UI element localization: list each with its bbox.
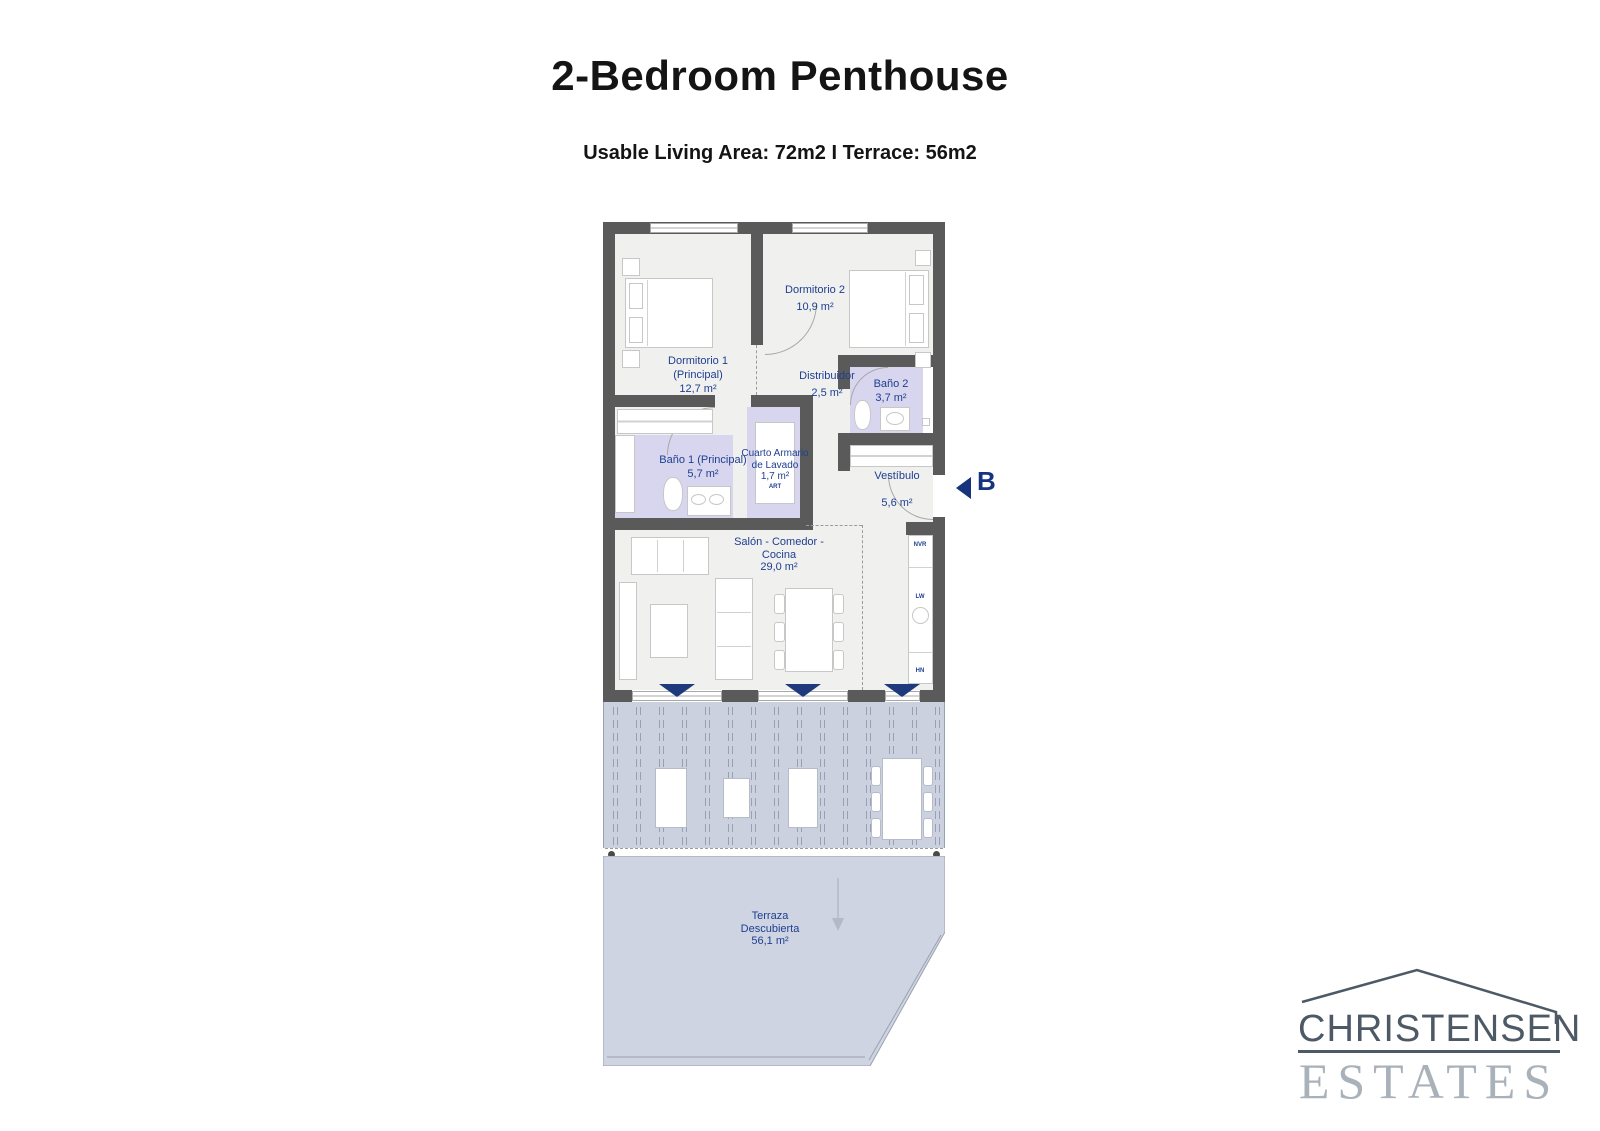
room-name: Salón - Comedor - [734, 536, 824, 549]
sink [709, 494, 724, 505]
chair [871, 792, 881, 812]
room-area: 5,6 m² [874, 497, 919, 511]
sink [691, 494, 706, 505]
chair [923, 766, 933, 786]
shower-drain [922, 418, 930, 426]
dashed-line [862, 525, 863, 690]
nightstand [915, 352, 931, 368]
room-label-dormitorio2: Dormitorio 2 10,9 m² [785, 284, 845, 315]
page-subtitle: Usable Living Area: 72m2 I Terrace: 56m2 [0, 142, 1560, 165]
room-label-lavado: Cuarto Armario de Lavado 1,7 m² [741, 448, 808, 483]
wall [933, 234, 945, 475]
appliance-label: HN [916, 668, 925, 674]
sink [886, 412, 904, 425]
sun-lounger [655, 768, 687, 828]
room-name: Baño 2 [874, 378, 909, 392]
window [792, 223, 868, 233]
room-name: Descubierta [741, 923, 800, 936]
wall [838, 445, 850, 471]
nightstand [622, 350, 640, 368]
chair [871, 766, 881, 786]
toilet [663, 477, 683, 511]
sofa [631, 537, 709, 575]
dashed-line [756, 345, 757, 395]
window [650, 223, 738, 233]
brand-logo: CHRISTENSEN ESTATES [1253, 962, 1583, 1127]
room-label-distribuidor: Distribuidor 2,5 m² [799, 370, 855, 401]
entrance-label: B [977, 468, 996, 494]
room-area: 1,7 m² [741, 471, 808, 483]
wall [603, 690, 632, 702]
room-name: (Principal) [668, 369, 728, 383]
bed-line [647, 280, 648, 346]
room-name: Vestíbulo [874, 470, 919, 484]
pillow [629, 283, 643, 309]
wall [615, 395, 715, 407]
room-label-vestibulo: Vestíbulo 5,6 m² [874, 470, 919, 511]
chair [923, 818, 933, 838]
room-area: 3,7 m² [874, 392, 909, 406]
room-name: Dormitorio 2 [785, 284, 845, 298]
floor-plan: NVR LW HN B Dormitorio 1 (Principal) 12,… [603, 222, 945, 1070]
room-name: Cuarto Armario [741, 448, 808, 460]
room-area: 2,5 m² [799, 387, 855, 401]
room-label-dormitorio1: Dormitorio 1 (Principal) 12,7 m² [668, 355, 728, 396]
dining-table [785, 588, 833, 672]
sun-lounger [788, 768, 818, 828]
wall [848, 690, 885, 702]
dining-table [882, 758, 922, 840]
wall [603, 234, 615, 702]
closet [617, 409, 713, 434]
chair [774, 650, 785, 670]
bed-line [905, 272, 906, 346]
wall [751, 234, 763, 345]
coffee-table [650, 604, 688, 658]
page-title: 2-Bedroom Penthouse [0, 52, 1560, 100]
sofa-line [657, 540, 658, 572]
nightstand [915, 250, 931, 266]
terrace-divider-line [605, 848, 943, 849]
chair [833, 594, 844, 614]
logo-type: ESTATES [1291, 1056, 1567, 1106]
appliance-label: ART [769, 484, 781, 490]
chair [774, 622, 785, 642]
pillow [909, 275, 924, 305]
counter-line [909, 652, 932, 653]
chair [774, 594, 785, 614]
window-marker-icon [884, 684, 920, 697]
closet [850, 445, 933, 467]
room-area: 12,7 m² [668, 383, 728, 397]
room-label-bano2: Baño 2 3,7 m² [874, 378, 909, 406]
appliance-label: LW [916, 594, 925, 600]
wall [722, 690, 758, 702]
room-label-bano1: Baño 1 (Principal) 5,7 m² [659, 454, 746, 482]
kitchen-sink [912, 607, 929, 624]
room-name: Terraza [741, 910, 800, 923]
pillow [909, 313, 924, 343]
sofa-line [717, 646, 751, 647]
shower [615, 435, 635, 513]
pillow [629, 317, 643, 343]
room-name: Cocina [734, 549, 824, 562]
wall [906, 522, 945, 535]
entrance-door-opening [933, 475, 945, 517]
dashed-line [806, 525, 862, 526]
window-marker-icon [785, 684, 821, 697]
wall [920, 690, 945, 702]
window-marker-icon [659, 684, 695, 697]
wall [615, 518, 800, 530]
room-label-terraza: Terraza Descubierta 56,1 m² [741, 910, 800, 948]
wall [838, 433, 933, 445]
header: 2-Bedroom Penthouse Usable Living Area: … [0, 0, 1560, 165]
room-area: 10,9 m² [785, 301, 845, 315]
nightstand [622, 258, 640, 276]
logo-name: CHRISTENSEN [1298, 1010, 1560, 1048]
chair [833, 622, 844, 642]
side-table [723, 778, 750, 818]
chair [871, 818, 881, 838]
room-name: Dormitorio 1 [668, 355, 728, 369]
entrance-arrow-icon [956, 477, 971, 499]
room-name: Distribuidor [799, 370, 855, 384]
sofa-line [683, 540, 684, 572]
room-name: Baño 1 (Principal) [659, 454, 746, 468]
chair [833, 650, 844, 670]
tv-unit [619, 582, 637, 680]
flyer-page: 2-Bedroom Penthouse Usable Living Area: … [0, 0, 1600, 1131]
room-label-salon: Salón - Comedor - Cocina 29,0 m² [734, 536, 824, 574]
toilet [854, 400, 871, 430]
sofa-line [717, 612, 751, 613]
appliance-label: NVR [914, 542, 927, 548]
wall [933, 517, 945, 702]
sofa [715, 578, 753, 680]
counter-line [909, 567, 932, 568]
room-area: 56,1 m² [741, 935, 800, 948]
open-terrace [603, 856, 945, 1066]
room-area: 5,7 m² [659, 468, 746, 482]
room-name: de Lavado [741, 460, 808, 472]
chair [923, 792, 933, 812]
room-area: 29,0 m² [734, 561, 824, 574]
